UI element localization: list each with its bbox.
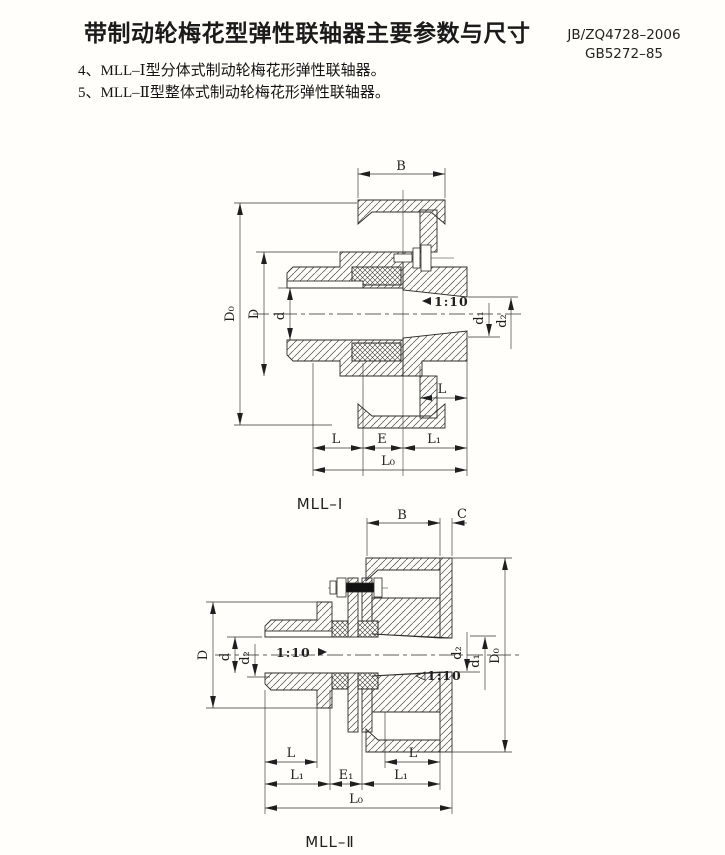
figure1-caption: MLL–Ⅰ <box>297 495 344 513</box>
dim-label-d-2: d <box>218 653 233 661</box>
dim-label-lhub-1: L <box>438 382 447 397</box>
dim-label-dcap-1: D <box>247 309 262 319</box>
dim-label-b2: B <box>397 508 407 523</box>
dim-label-d-1: d <box>273 312 288 320</box>
taper-label-1: 1:10 <box>434 294 469 309</box>
mll1-keyway <box>287 281 363 288</box>
dim-label-d0-1: D₀ <box>223 306 238 322</box>
dim-label-d1-2: d₁ <box>468 654 483 668</box>
dim-label-lr-2: L <box>409 746 418 761</box>
mll1-taper-arrow <box>422 297 431 305</box>
taper-label-right-2: 1:10 <box>427 668 462 683</box>
dim-label-e-1: E <box>377 432 387 447</box>
figure-mll2-drawing: B C D d d₂ 1:10 1:10 d₂ d₁ D₀ L L L₁ E₁ … <box>196 507 523 851</box>
dim-label-l1l-2: L₁ <box>290 768 304 783</box>
technical-drawings: B D₀ D d d₁ d₂ 1:10 L L E L₁ L₀ MLL–Ⅰ <box>0 0 725 855</box>
mll2-keyway <box>265 631 332 637</box>
figure2-caption: MLL–Ⅱ <box>305 833 355 851</box>
dim-label-d2-1: d₂ <box>495 314 510 328</box>
dim-label-l0-1: L₀ <box>381 454 395 469</box>
dim-label-l1-1: L₁ <box>427 432 441 447</box>
dim-label-l-1: L <box>332 432 341 447</box>
mll2-dimensions <box>206 518 512 814</box>
dim-label-d2l-2: d₂ <box>238 651 253 665</box>
dim-label-e1-2: E₁ <box>339 768 354 783</box>
figure-mll1-drawing: B D₀ D d d₁ d₂ 1:10 L L E L₁ L₀ MLL–Ⅰ <box>223 159 523 513</box>
standard-document-page: { "page": { "title": "带制动轮梅花型弹性联轴器主要参数与尺… <box>0 0 725 855</box>
dim-label-c2: C <box>457 507 467 522</box>
dim-label-d2r-2: d₂ <box>450 646 465 660</box>
dim-label-d0-2: D₀ <box>488 648 503 664</box>
dim-label-b1: B <box>396 159 406 174</box>
dim-label-d1-1: d₁ <box>472 311 487 325</box>
dim-label-l0-2: L₀ <box>349 792 363 807</box>
taper-label-left-2: 1:10 <box>276 645 311 660</box>
dim-label-dcap-2: D <box>196 650 211 660</box>
dim-label-l1r-2: L₁ <box>394 768 408 783</box>
dim-label-ll-2: L <box>287 746 296 761</box>
